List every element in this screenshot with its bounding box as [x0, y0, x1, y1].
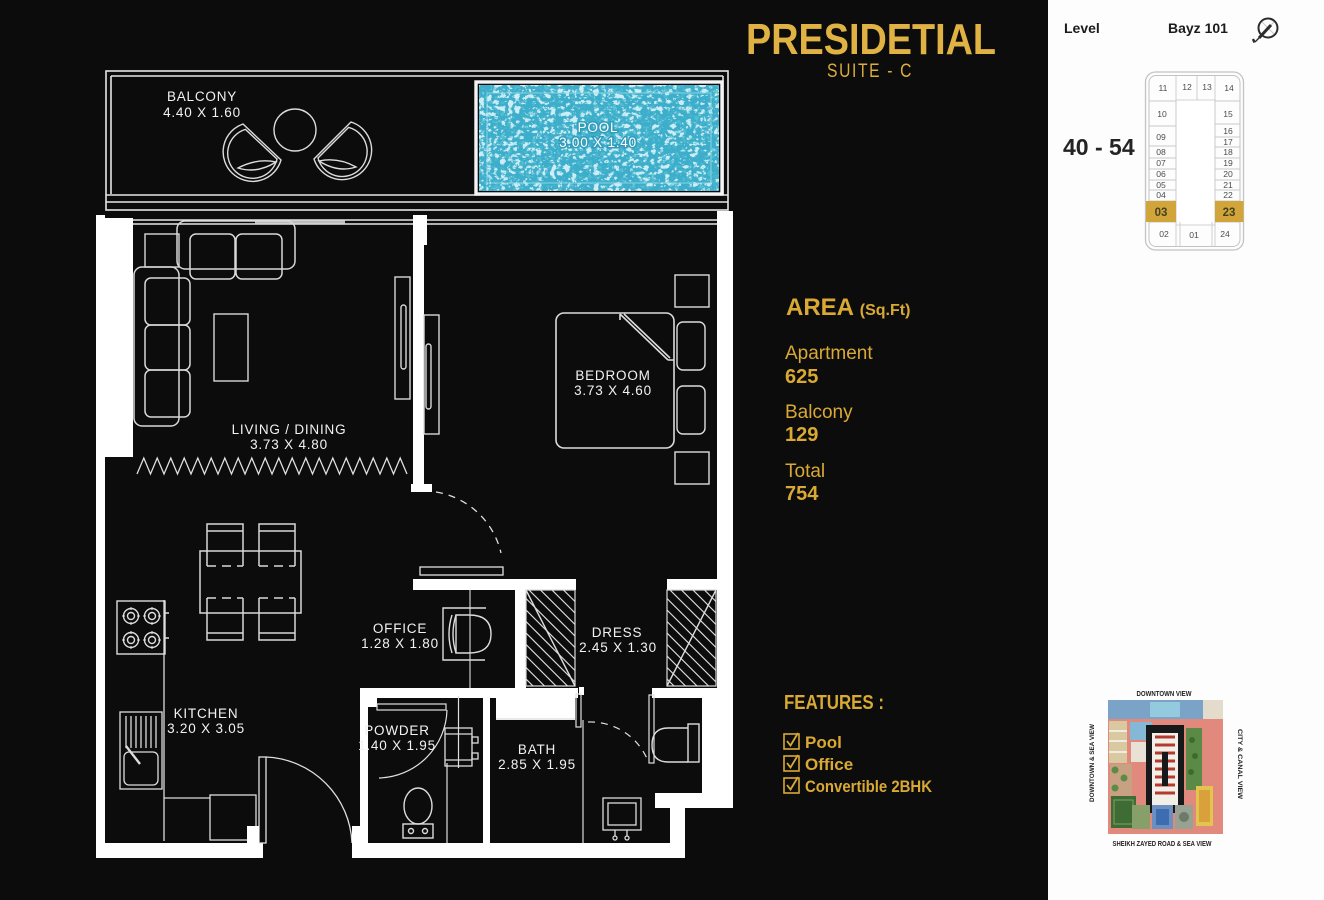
- svg-text:11: 11: [1159, 83, 1168, 93]
- svg-text:1.28 X 1.80: 1.28 X 1.80: [361, 636, 439, 651]
- svg-text:OFFICE: OFFICE: [373, 621, 427, 636]
- svg-text:KITCHEN: KITCHEN: [174, 706, 239, 721]
- svg-text:07: 07: [1156, 158, 1166, 168]
- svg-text:2.45 X 1.30: 2.45 X 1.30: [579, 640, 657, 655]
- svg-text:02: 02: [1159, 229, 1169, 239]
- svg-text:Apartment: Apartment: [785, 343, 873, 364]
- svg-text:SUITE - C: SUITE - C: [827, 61, 913, 82]
- svg-text:2.85 X 1.95: 2.85 X 1.95: [498, 757, 576, 772]
- svg-text:Total: Total: [785, 461, 825, 482]
- svg-text:BATH: BATH: [518, 742, 556, 757]
- svg-text:Pool: Pool: [805, 733, 842, 752]
- svg-text:Convertible 2BHK: Convertible 2BHK: [805, 777, 933, 796]
- svg-text:Office: Office: [805, 755, 853, 774]
- svg-text:Level: Level: [1064, 20, 1100, 36]
- svg-text:1.40 X 1.95: 1.40 X 1.95: [358, 738, 436, 753]
- svg-text:04: 04: [1156, 190, 1166, 200]
- svg-text:03: 03: [1155, 207, 1168, 219]
- svg-text:4.40 X 1.60: 4.40 X 1.60: [163, 105, 241, 120]
- svg-text:05: 05: [1156, 180, 1166, 190]
- svg-text:DOWNTOWN VIEW: DOWNTOWN VIEW: [1137, 691, 1192, 698]
- svg-text:SHEIKH ZAYED ROAD & SEA VIEW: SHEIKH ZAYED ROAD & SEA VIEW: [1113, 841, 1212, 848]
- svg-text:3.73 X 4.60: 3.73 X 4.60: [574, 383, 652, 398]
- svg-text:DOWNTOWN & SEA VIEW: DOWNTOWN & SEA VIEW: [1089, 723, 1096, 802]
- svg-text:01: 01: [1189, 230, 1199, 240]
- svg-text:09: 09: [1156, 132, 1166, 142]
- svg-text:POOL: POOL: [578, 120, 619, 135]
- svg-text:21: 21: [1223, 180, 1233, 190]
- svg-text:3.20 X 3.05: 3.20 X 3.05: [167, 721, 245, 736]
- svg-text:12: 12: [1182, 82, 1192, 92]
- svg-text:22: 22: [1223, 190, 1233, 200]
- svg-text:BEDROOM: BEDROOM: [575, 368, 650, 383]
- svg-text:3.73 X 4.80: 3.73 X 4.80: [250, 437, 328, 452]
- svg-text:14: 14: [1224, 83, 1234, 93]
- svg-text:POWDER: POWDER: [364, 723, 430, 738]
- svg-text:17: 17: [1223, 137, 1233, 147]
- svg-text:DRESS: DRESS: [592, 625, 643, 640]
- svg-text:Bayz 101: Bayz 101: [1168, 20, 1228, 36]
- svg-text:16: 16: [1223, 126, 1233, 136]
- svg-text:08: 08: [1156, 147, 1166, 157]
- svg-text:BALCONY: BALCONY: [167, 89, 237, 104]
- svg-text:24: 24: [1220, 229, 1230, 239]
- svg-text:15: 15: [1223, 109, 1233, 119]
- svg-text:40 - 54: 40 - 54: [1063, 134, 1135, 160]
- svg-text:19: 19: [1223, 158, 1233, 168]
- svg-text:06: 06: [1156, 169, 1166, 179]
- svg-text:754: 754: [785, 483, 819, 505]
- svg-text:FEATURES :: FEATURES :: [784, 692, 884, 714]
- svg-text:3.00 X 1.40: 3.00 X 1.40: [559, 135, 637, 150]
- svg-text:PRESIDETIAL: PRESIDETIAL: [746, 15, 996, 64]
- svg-text:10: 10: [1157, 109, 1167, 119]
- svg-text:Balcony: Balcony: [785, 402, 853, 423]
- svg-text:129: 129: [785, 424, 818, 446]
- svg-text:13: 13: [1202, 82, 1212, 92]
- svg-text:20: 20: [1223, 169, 1233, 179]
- svg-text:18: 18: [1223, 147, 1233, 157]
- svg-text:23: 23: [1223, 207, 1236, 219]
- svg-text:LIVING / DINING: LIVING / DINING: [232, 422, 347, 437]
- svg-text:625: 625: [785, 366, 818, 388]
- svg-text:CITY & CANAL VIEW: CITY & CANAL VIEW: [1236, 729, 1243, 800]
